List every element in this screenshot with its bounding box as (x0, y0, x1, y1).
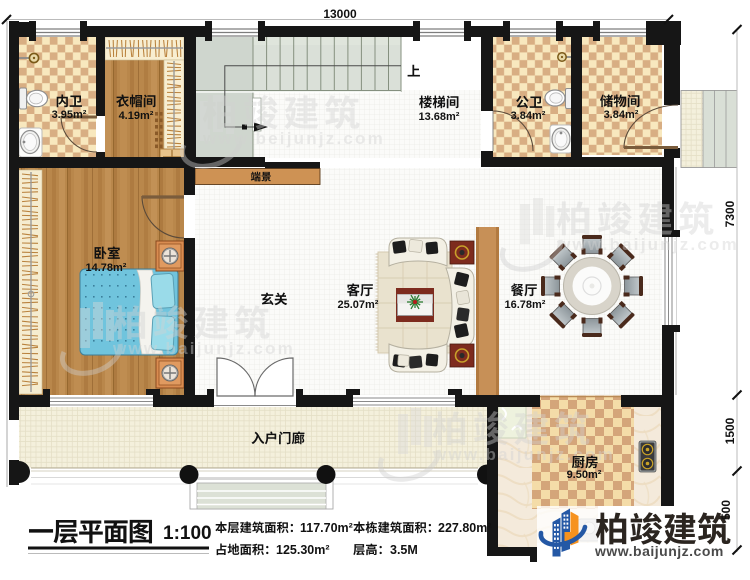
svg-text:13.68m²: 13.68m² (419, 111, 460, 123)
svg-text:www.beijunjz.com: www.beijunjz.com (202, 129, 385, 148)
svg-text:1500: 1500 (723, 417, 737, 444)
svg-text:3.5M: 3.5M (390, 543, 418, 557)
svg-text:14.78m²: 14.78m² (86, 262, 127, 274)
svg-text:117.70m²: 117.70m² (300, 521, 353, 535)
svg-text:www.baijunjz.com: www.baijunjz.com (112, 339, 295, 358)
svg-text:3.84m²: 3.84m² (511, 110, 546, 122)
svg-text:13000: 13000 (323, 7, 357, 21)
svg-text:www.baijunjz.com: www.baijunjz.com (594, 543, 724, 559)
svg-text:3.95m²: 3.95m² (52, 109, 87, 121)
svg-text:7300: 7300 (723, 200, 737, 227)
svg-text:4.19m²: 4.19m² (119, 110, 154, 122)
svg-text:9.50m²: 9.50m² (567, 469, 602, 481)
svg-text:500: 500 (719, 500, 733, 520)
svg-text:3.84m²: 3.84m² (604, 109, 639, 121)
svg-text:16.78m²: 16.78m² (505, 299, 546, 311)
svg-text:www.baijunjz.com: www.baijunjz.com (556, 235, 739, 254)
svg-text:227.80m²: 227.80m² (438, 521, 492, 535)
svg-text:125.30m²: 125.30m² (276, 543, 330, 557)
svg-text:1:100: 1:100 (163, 523, 212, 544)
svg-text:25.07m²: 25.07m² (338, 299, 379, 311)
